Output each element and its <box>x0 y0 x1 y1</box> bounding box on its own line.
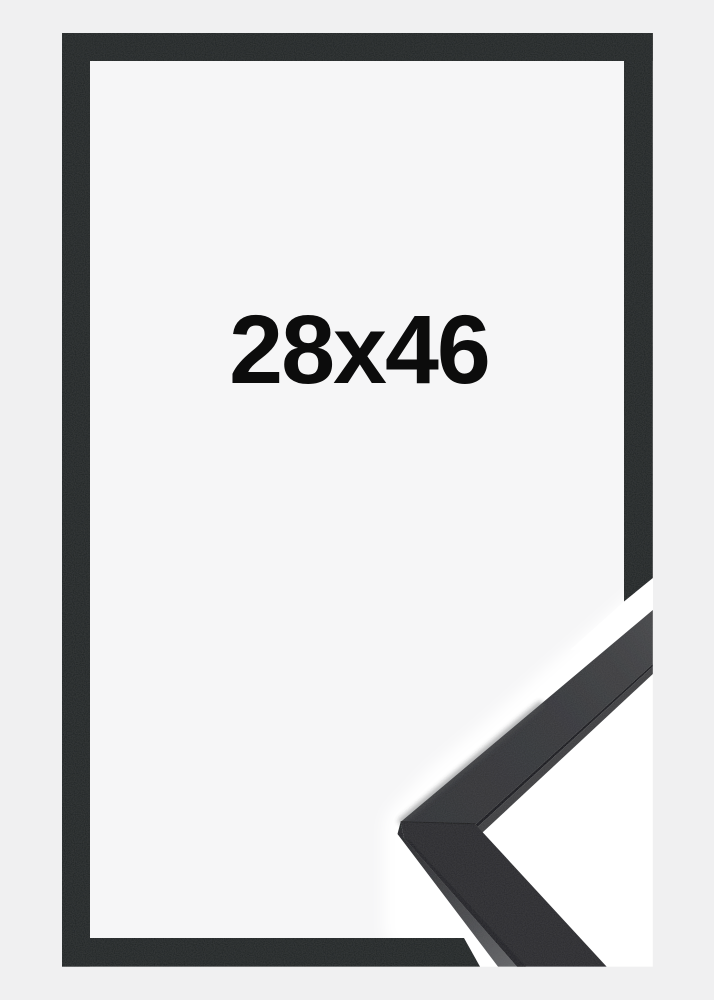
svg-text:28x46: 28x46 <box>229 295 489 404</box>
